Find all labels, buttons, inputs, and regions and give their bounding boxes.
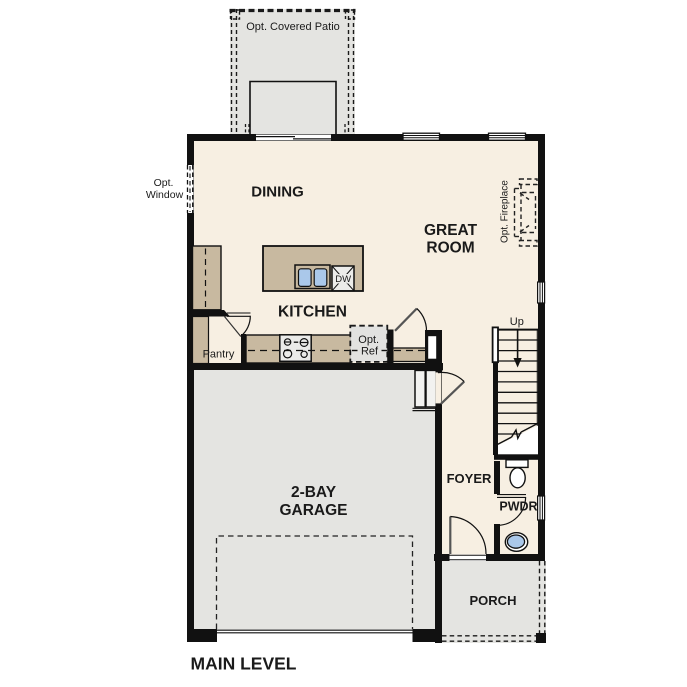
svg-text:Pantry: Pantry — [203, 349, 235, 361]
svg-text:KITCHEN: KITCHEN — [278, 304, 347, 321]
svg-text:Opt. Fireplace: Opt. Fireplace — [500, 180, 511, 243]
svg-text:GARAGE: GARAGE — [279, 502, 347, 519]
svg-text:DINING: DINING — [251, 184, 304, 201]
svg-text:Opt.: Opt. — [154, 177, 174, 189]
svg-text:GREAT: GREAT — [424, 222, 478, 239]
svg-text:MAIN LEVEL: MAIN LEVEL — [191, 654, 297, 674]
svg-text:DW: DW — [335, 274, 351, 285]
svg-text:Up: Up — [510, 316, 524, 328]
svg-text:ROOM: ROOM — [426, 240, 474, 257]
svg-text:Ref: Ref — [361, 346, 379, 358]
svg-text:PWDR: PWDR — [499, 500, 537, 514]
svg-text:FOYER: FOYER — [447, 471, 492, 486]
svg-text:2-BAY: 2-BAY — [291, 484, 337, 501]
svg-text:Opt. Covered Patio: Opt. Covered Patio — [246, 21, 340, 33]
svg-text:Window: Window — [146, 189, 184, 201]
svg-text:Opt.: Opt. — [358, 334, 379, 346]
svg-text:PORCH: PORCH — [470, 593, 517, 608]
